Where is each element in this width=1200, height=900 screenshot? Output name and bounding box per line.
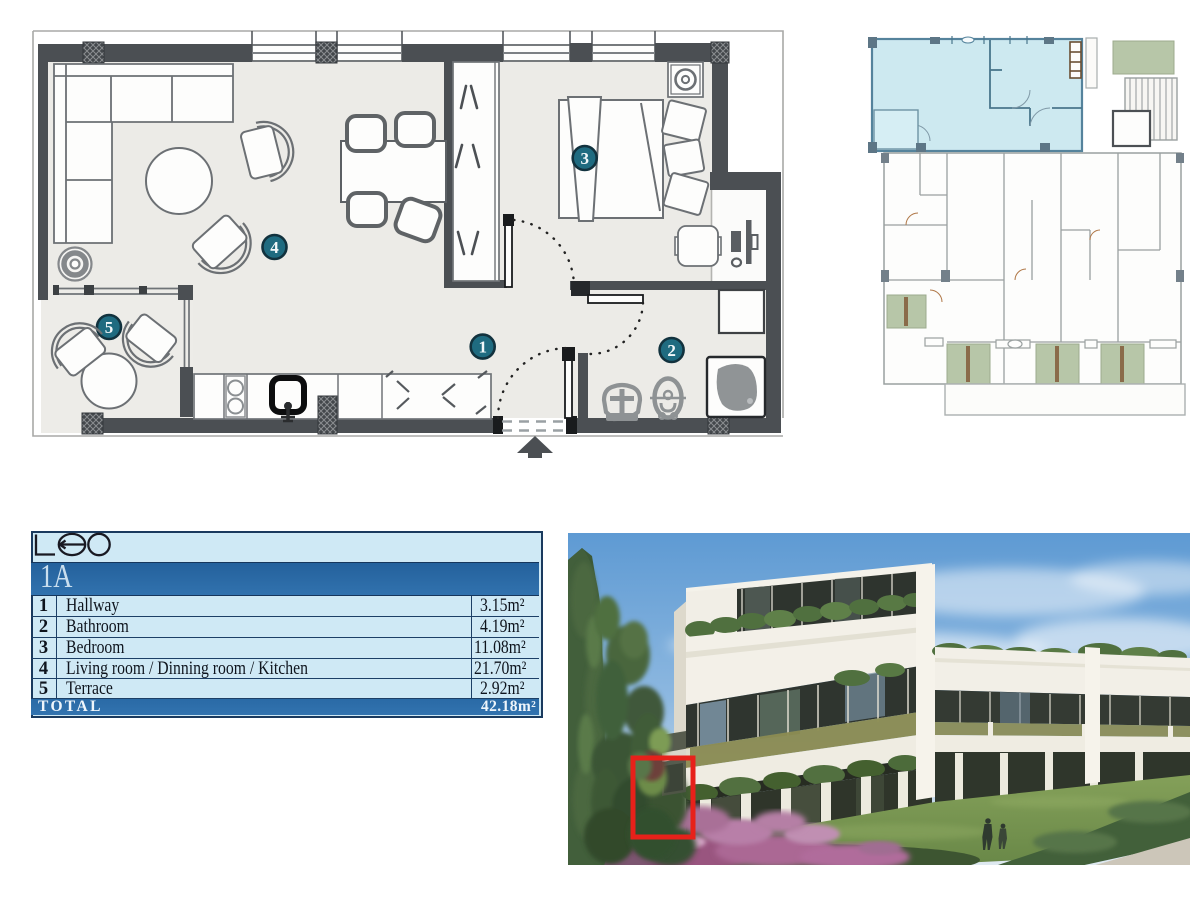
svg-text:4: 4 [270,238,279,257]
svg-text:2: 2 [667,341,676,360]
svg-text:5: 5 [105,318,114,337]
svg-text:3: 3 [580,149,589,168]
svg-text:1: 1 [478,337,487,356]
